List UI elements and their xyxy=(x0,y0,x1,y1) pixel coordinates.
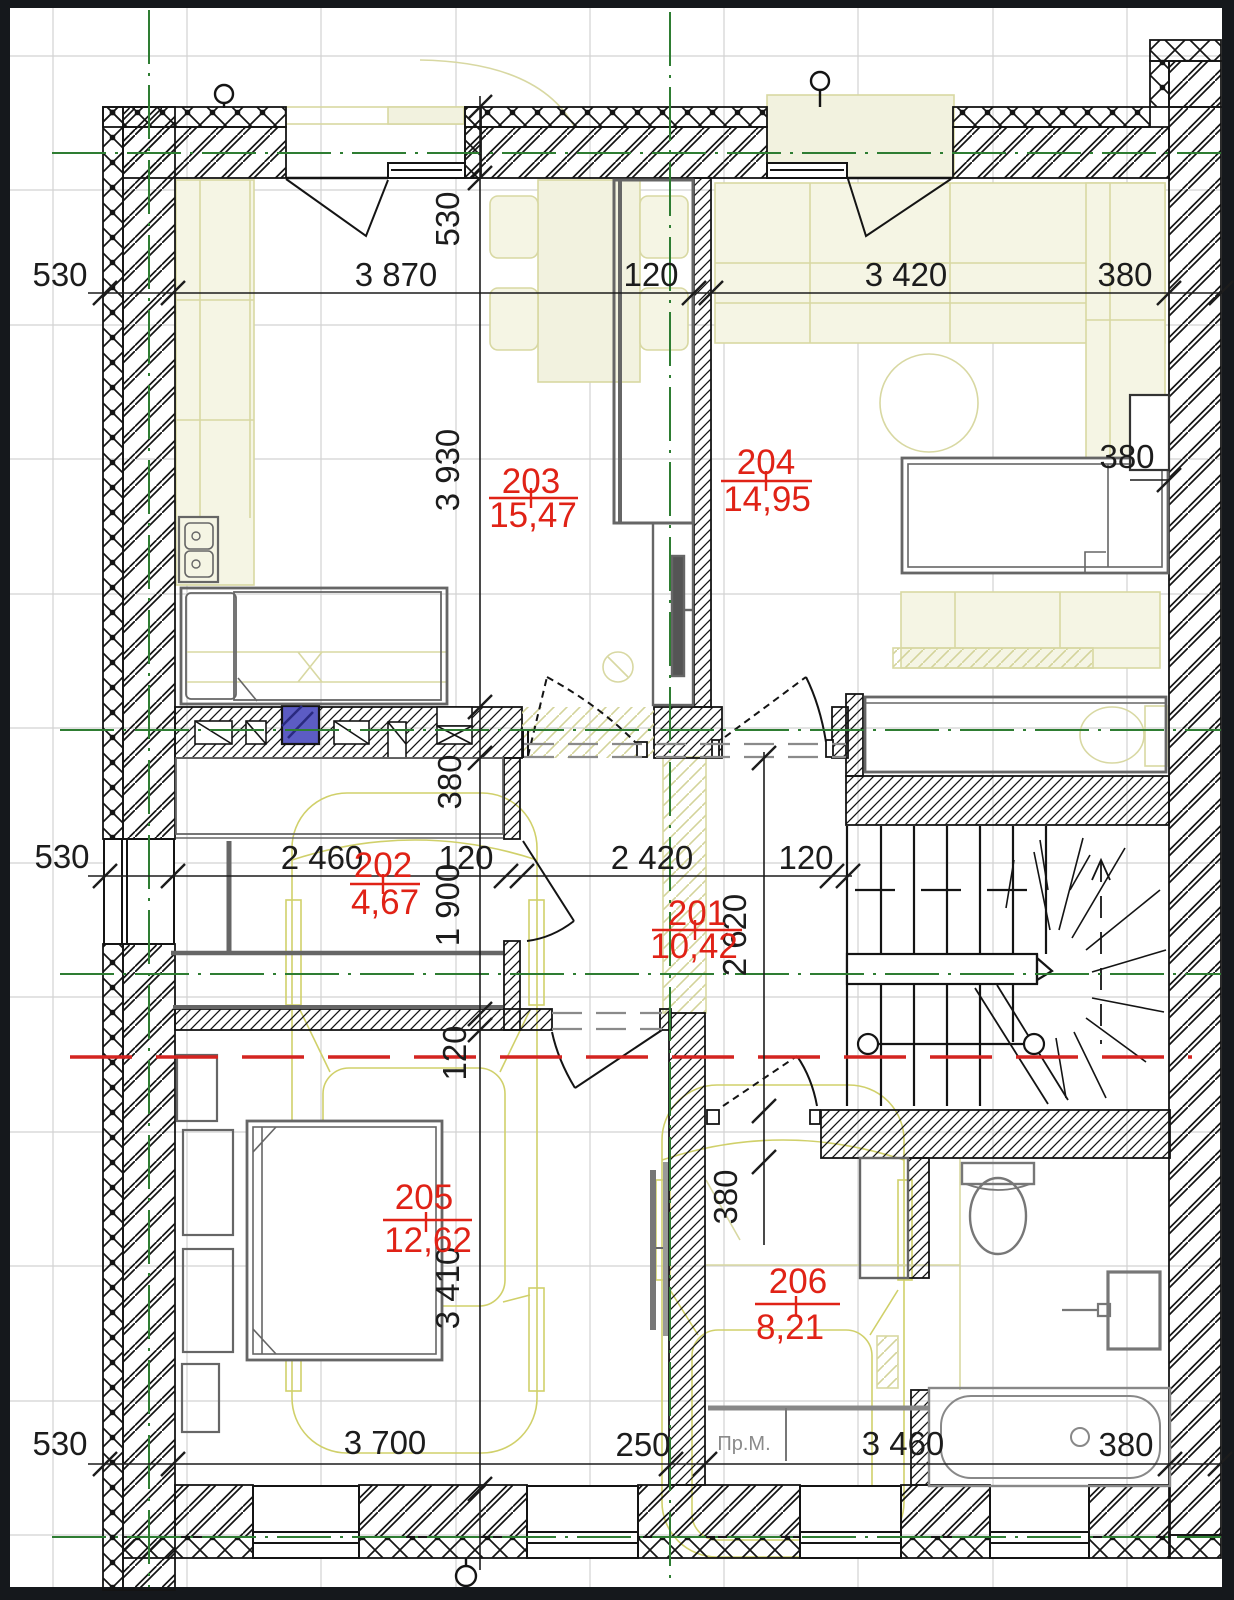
svg-text:250: 250 xyxy=(615,1426,670,1463)
svg-text:3 930: 3 930 xyxy=(429,429,466,512)
svg-text:206: 206 xyxy=(769,1262,827,1301)
svg-text:205: 205 xyxy=(395,1178,453,1217)
svg-text:120: 120 xyxy=(778,839,833,876)
svg-text:3 460: 3 460 xyxy=(862,1425,945,1462)
svg-text:530: 530 xyxy=(34,838,89,875)
svg-text:8,21: 8,21 xyxy=(756,1308,824,1347)
svg-text:380: 380 xyxy=(1099,438,1154,475)
svg-text:3 420: 3 420 xyxy=(865,256,948,293)
svg-text:120: 120 xyxy=(436,1025,473,1080)
svg-text:Пр.М.: Пр.М. xyxy=(717,1433,770,1455)
svg-text:15,47: 15,47 xyxy=(489,496,577,535)
svg-text:380: 380 xyxy=(1098,1426,1153,1463)
svg-text:530: 530 xyxy=(32,256,87,293)
svg-text:2 420: 2 420 xyxy=(611,839,694,876)
svg-text:380: 380 xyxy=(707,1169,744,1224)
svg-text:530: 530 xyxy=(429,191,466,246)
svg-text:380: 380 xyxy=(1097,256,1152,293)
svg-text:120: 120 xyxy=(623,256,678,293)
svg-text:380: 380 xyxy=(431,754,468,809)
svg-text:2 460: 2 460 xyxy=(281,839,364,876)
svg-text:530: 530 xyxy=(32,1425,87,1462)
svg-text:4,67: 4,67 xyxy=(351,883,419,922)
svg-text:3 870: 3 870 xyxy=(355,256,438,293)
svg-text:3 700: 3 700 xyxy=(344,1424,427,1461)
svg-text:1 900: 1 900 xyxy=(429,864,466,947)
svg-text:12,62: 12,62 xyxy=(384,1221,472,1260)
